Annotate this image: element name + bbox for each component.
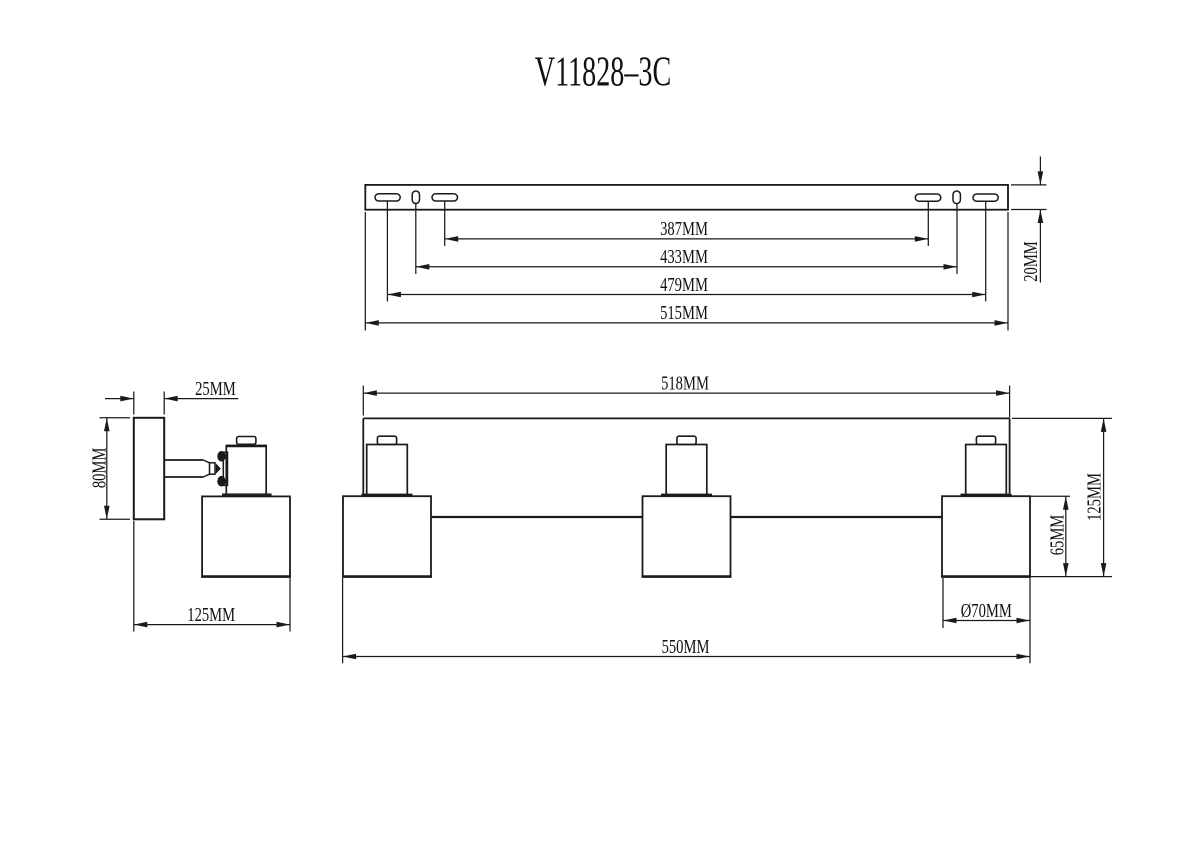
svg-text:125MM: 125MM	[187, 603, 235, 626]
svg-text:20MM: 20MM	[1019, 241, 1042, 282]
svg-text:433MM: 433MM	[660, 245, 708, 268]
svg-text:550MM: 550MM	[662, 635, 710, 658]
svg-text:25MM: 25MM	[195, 377, 236, 400]
svg-text:387MM: 387MM	[660, 217, 708, 240]
svg-text:65MM: 65MM	[1045, 514, 1068, 555]
svg-text:125MM: 125MM	[1082, 473, 1105, 521]
svg-text:80MM: 80MM	[87, 447, 110, 488]
svg-text:Ø70MM: Ø70MM	[961, 599, 1012, 622]
svg-text:V11828–3C: V11828–3C	[535, 48, 671, 95]
svg-text:479MM: 479MM	[660, 273, 708, 296]
svg-text:518MM: 518MM	[661, 371, 709, 394]
svg-text:515MM: 515MM	[660, 301, 708, 324]
